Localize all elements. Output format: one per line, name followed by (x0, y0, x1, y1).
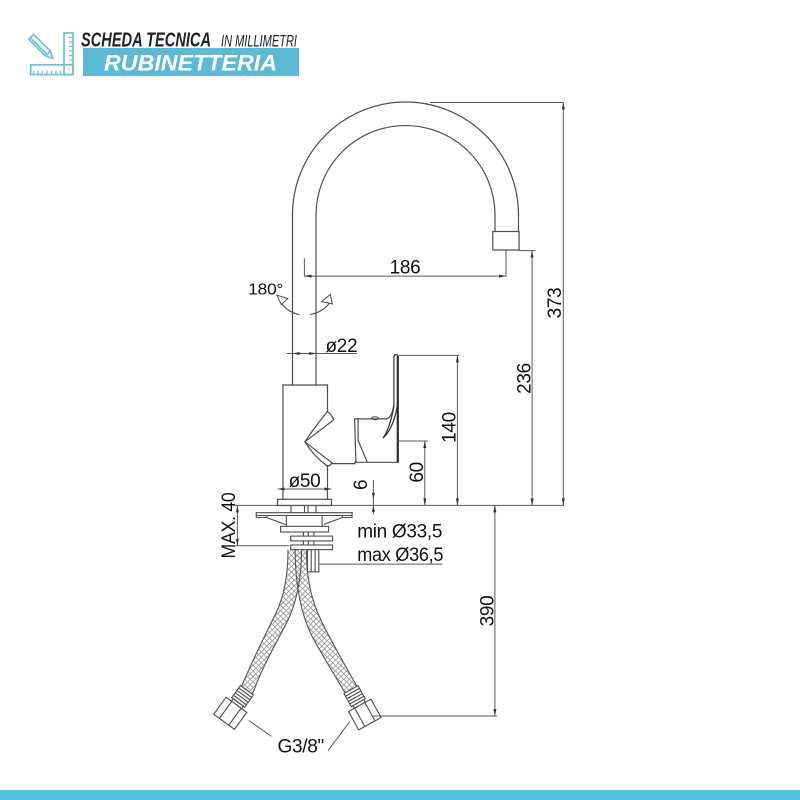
svg-text:min Ø33,5: min Ø33,5 (357, 522, 442, 543)
svg-text:max Ø36,5: max Ø36,5 (357, 545, 443, 566)
svg-text:390: 390 (478, 596, 499, 627)
svg-text:373: 373 (545, 288, 566, 319)
svg-text:ø50: ø50 (289, 471, 321, 492)
svg-text:60: 60 (407, 462, 428, 483)
svg-text:G3/8": G3/8" (278, 737, 324, 758)
svg-text:6: 6 (351, 480, 372, 490)
svg-text:186: 186 (390, 258, 421, 279)
svg-text:ø22: ø22 (326, 336, 358, 357)
svg-text:180°: 180° (248, 282, 283, 299)
svg-text:140: 140 (440, 412, 461, 443)
svg-text:MAX. 40: MAX. 40 (219, 493, 240, 559)
svg-text:236: 236 (515, 363, 536, 394)
